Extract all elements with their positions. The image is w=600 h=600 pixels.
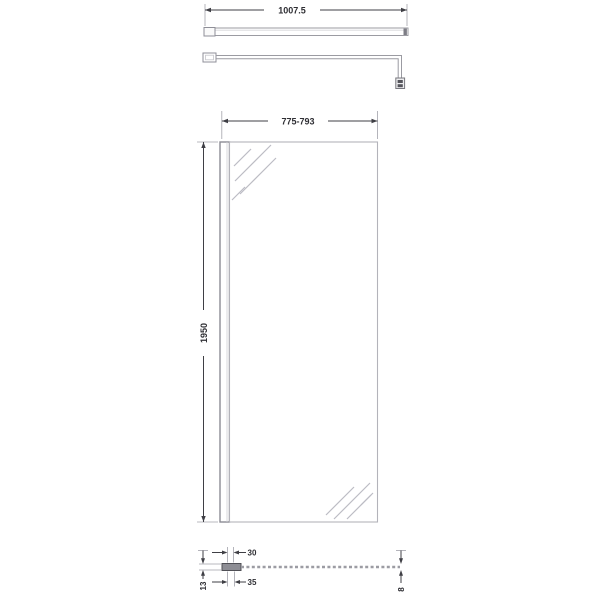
bracket-depth-label: 13 xyxy=(199,581,208,590)
arrowhead-right xyxy=(401,8,407,12)
bracket-depth-dimension: 13 xyxy=(198,551,221,591)
arrowhead-left xyxy=(205,8,211,12)
glass-thickness-dimension: 8 xyxy=(396,551,406,592)
bracket-width-dimension: 30 xyxy=(212,547,257,563)
glass-clamp-detail xyxy=(398,84,403,87)
screen-width-label: 775-793 xyxy=(281,116,314,126)
arrowhead-right xyxy=(235,580,241,584)
arrowhead-down xyxy=(201,558,205,564)
arrowhead-left xyxy=(222,119,228,123)
screen-plan-view: 30 13 35 xyxy=(198,547,406,592)
arrowhead-left xyxy=(222,580,228,584)
profile-width-label: 35 xyxy=(248,578,257,587)
wall-profile-section xyxy=(222,564,241,571)
profile-width-dimension: 35 xyxy=(212,572,257,588)
arrowhead-right xyxy=(372,119,378,123)
arrowhead-up xyxy=(399,570,403,576)
screen-front-view: 775-793 1950 xyxy=(197,111,378,522)
wall-bracket-fitting xyxy=(204,28,215,37)
technical-drawing-canvas: 1007.5 775-793 xyxy=(0,0,600,600)
shower-screen-diagram: 1007.5 775-793 xyxy=(0,0,600,600)
arrowhead-down xyxy=(399,558,403,564)
screen-height-label: 1950 xyxy=(199,323,209,343)
bar-end-cap xyxy=(404,29,407,35)
support-bar-length-label: 1007.5 xyxy=(278,6,306,16)
support-bar-side-view xyxy=(203,53,405,89)
bracket-width-label: 30 xyxy=(248,549,257,558)
support-bar-body xyxy=(205,28,408,36)
wall-bracket-inner-detail xyxy=(206,55,214,60)
screen-width-dimension: 775-793 xyxy=(222,111,378,139)
arrowhead-bottom xyxy=(201,516,205,522)
arrowhead-up xyxy=(201,570,205,576)
support-bar-top-view: 1007.5 xyxy=(204,4,408,36)
screen-height-dimension: 1950 xyxy=(197,142,218,522)
support-bar-length-dimension: 1007.5 xyxy=(205,4,407,26)
glass-thickness-label: 8 xyxy=(397,587,406,592)
wall-profile-channel xyxy=(220,142,230,522)
bar-inner-edge xyxy=(216,59,398,78)
arrowhead-right xyxy=(234,551,240,555)
glass-clamp-detail xyxy=(398,80,403,83)
arrowhead-left xyxy=(222,551,228,555)
arrowhead-top xyxy=(201,142,205,148)
glass-panel xyxy=(230,142,378,522)
